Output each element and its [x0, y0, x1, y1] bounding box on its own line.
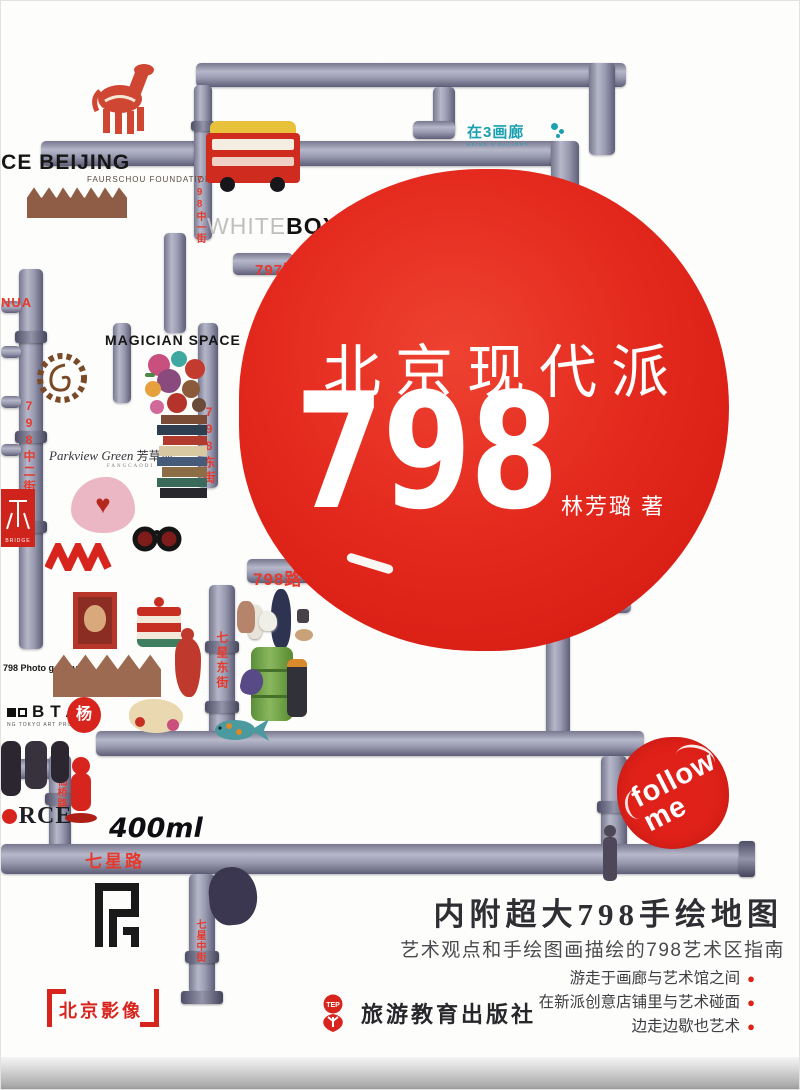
street-label-hua-fragment: NUA	[1, 295, 32, 310]
dessert-illustration	[129, 699, 183, 733]
figure-head	[604, 825, 616, 837]
pipe-top	[196, 63, 626, 87]
bridge-seal-illustration: BRIDGE	[1, 489, 35, 547]
book	[157, 457, 207, 466]
heart-cake-illustration: ♥	[71, 477, 135, 533]
pipe-top-right-drop	[589, 63, 615, 155]
pipe-btap-row	[96, 731, 644, 756]
magician-space-label: MAGICIAN SPACE	[105, 332, 241, 348]
dala-horse-illustration	[83, 57, 157, 142]
pipe-collar	[205, 701, 239, 713]
walking-figure-illustration	[595, 825, 625, 887]
red-figure-illustration	[65, 757, 97, 825]
factory-buildings-illustration	[53, 651, 161, 697]
force-logo: F RCE	[0, 803, 72, 830]
sculpture	[25, 741, 47, 789]
book	[159, 446, 207, 456]
mw-zigzag-logo	[45, 543, 115, 576]
cake-cherry	[154, 597, 164, 607]
sunglasses-illustration	[131, 517, 183, 562]
pipe-flange	[181, 991, 223, 1004]
bus-upper-windows	[212, 139, 294, 150]
seal-sub-text: BRIDGE	[1, 538, 35, 544]
400ml-logo: 400ml	[109, 813, 203, 844]
heart-icon: ♥	[95, 489, 110, 519]
selling-point-text: 边走边歇也艺术	[632, 1018, 741, 1035]
page-edge-band	[1, 1057, 800, 1090]
street-label-qixinglu: 七星路	[85, 847, 145, 872]
cover-subtitle: 艺术观点和手绘图画描绘的798艺术区指南	[400, 935, 785, 962]
red-dot-icon: ●	[747, 1019, 755, 1034]
btap-square-outline-icon	[18, 708, 27, 717]
red-dot-icon: ●	[747, 995, 755, 1010]
portrait-face	[84, 605, 106, 632]
figure-base	[65, 813, 97, 823]
pipe-being3-stub	[413, 121, 455, 139]
koi-fish-illustration	[211, 715, 269, 750]
pipe-endcap	[739, 841, 755, 877]
figure-body	[603, 837, 617, 881]
dark-sculptures-illustration	[1, 741, 75, 801]
statue-head	[181, 628, 194, 641]
bottle-cap	[287, 659, 307, 667]
seal-lineart-icon	[1, 489, 35, 533]
cake-plate	[137, 639, 181, 647]
zigzag-icon	[45, 543, 115, 571]
follow-me-badge: follow me	[617, 737, 729, 849]
ace-beijing-label: ACE BEIJING	[0, 151, 130, 175]
being3-zh-label: 在3画廊	[467, 121, 562, 142]
pipe-stub	[1, 346, 21, 358]
cake-layer	[137, 623, 181, 632]
faurschou-label: FAURSCHOU FOUNDATION	[87, 175, 212, 184]
book	[157, 425, 207, 435]
strawberry-cake-illustration	[137, 597, 181, 647]
david-statue-illustration	[175, 637, 201, 697]
books-stack-illustration	[157, 415, 207, 498]
being3-dots-icon	[551, 123, 558, 130]
being3-dots-icon	[559, 129, 564, 134]
selling-points: 游走于画廊与艺术馆之间● 在新派创意店铺里与艺术碰面● 边走边歇也艺术●	[539, 967, 755, 1039]
bus-lower-windows	[212, 157, 294, 166]
book	[160, 488, 207, 498]
series-badge-text: 北京影像	[59, 997, 143, 1023]
grid-logo-icon	[93, 881, 149, 949]
selling-point: 游走于画廊与艺术馆之间●	[539, 967, 755, 991]
sculpture	[1, 741, 21, 796]
btap-square-icon	[7, 708, 16, 717]
yang-seal-text: 杨	[76, 706, 92, 723]
yang-seal-illustration: 杨	[67, 697, 101, 733]
publisher-row: TEP 旅游教育出版社	[313, 993, 536, 1033]
author-name: 林芳璐 著	[561, 489, 665, 521]
book	[163, 436, 207, 445]
cake-layer	[137, 632, 181, 639]
publisher-name: 旅游教育出版社	[361, 997, 536, 1029]
dessert-berry	[135, 717, 145, 727]
being3-en-label: BEING 3 GALLERY	[467, 142, 562, 147]
book	[162, 467, 207, 477]
pipe-whitebox	[164, 233, 186, 333]
fish-icon	[211, 715, 269, 745]
selling-point: 在新派创意店铺里与艺术碰面●	[539, 991, 755, 1015]
book	[161, 415, 207, 424]
figure-body	[71, 773, 91, 811]
coat-statue-illustration	[207, 865, 260, 927]
series-badge: 北京影像	[47, 989, 159, 1027]
sunglasses-icon	[131, 517, 183, 557]
cake-layer	[137, 607, 181, 616]
follow-me-text: follow me	[628, 748, 732, 837]
sweets-icon	[137, 347, 213, 423]
cover-tagline: 内附超大798手绘地图	[434, 889, 784, 934]
grid-logo-illustration	[93, 881, 149, 954]
pipe-collar	[15, 331, 47, 343]
selling-point-text: 游走于画廊与艺术馆之间	[570, 970, 741, 987]
street-label-qixingzhong: 七星中街	[192, 919, 207, 963]
tep-logo-text: TEP	[326, 1002, 340, 1009]
force-o-icon	[2, 809, 17, 824]
tep-logo-icon: TEP	[313, 993, 353, 1033]
street-label-798zhong2: 798中二街	[21, 399, 38, 495]
book-cover: 797路 798中一街 798中二街 798东街 798路 七星东街 酒仙桥路 …	[0, 0, 800, 1090]
mao-portrait-illustration	[73, 592, 117, 649]
brick-houses-illustration	[27, 184, 127, 218]
selling-point: 边走边歇也艺术●	[539, 1015, 755, 1039]
dessert-flower	[167, 719, 179, 731]
cake-layer	[137, 616, 181, 623]
spiral-gear-illustration	[35, 351, 89, 410]
book-title-number: 798	[295, 379, 557, 524]
red-dot-icon: ●	[747, 971, 755, 986]
spiral-icon	[35, 351, 89, 405]
pipe-stub	[1, 396, 21, 408]
being3-gallery-logo: 在3画廊 BEING 3 GALLERY	[467, 121, 562, 147]
selling-point-text: 在新派创意店铺里与艺术碰面	[539, 994, 741, 1011]
book	[157, 478, 207, 487]
parkview-label: Parkview Green 芳草地 FANGCAODI	[49, 447, 173, 469]
pipe-stub	[1, 444, 21, 456]
horse-icon	[83, 57, 157, 137]
dark-bottle-illustration	[287, 659, 307, 717]
being3-dots-icon	[556, 134, 560, 138]
street-label-qixingdong: 七星东街	[214, 631, 231, 691]
parkview-script-text: Parkview Green	[49, 448, 133, 463]
